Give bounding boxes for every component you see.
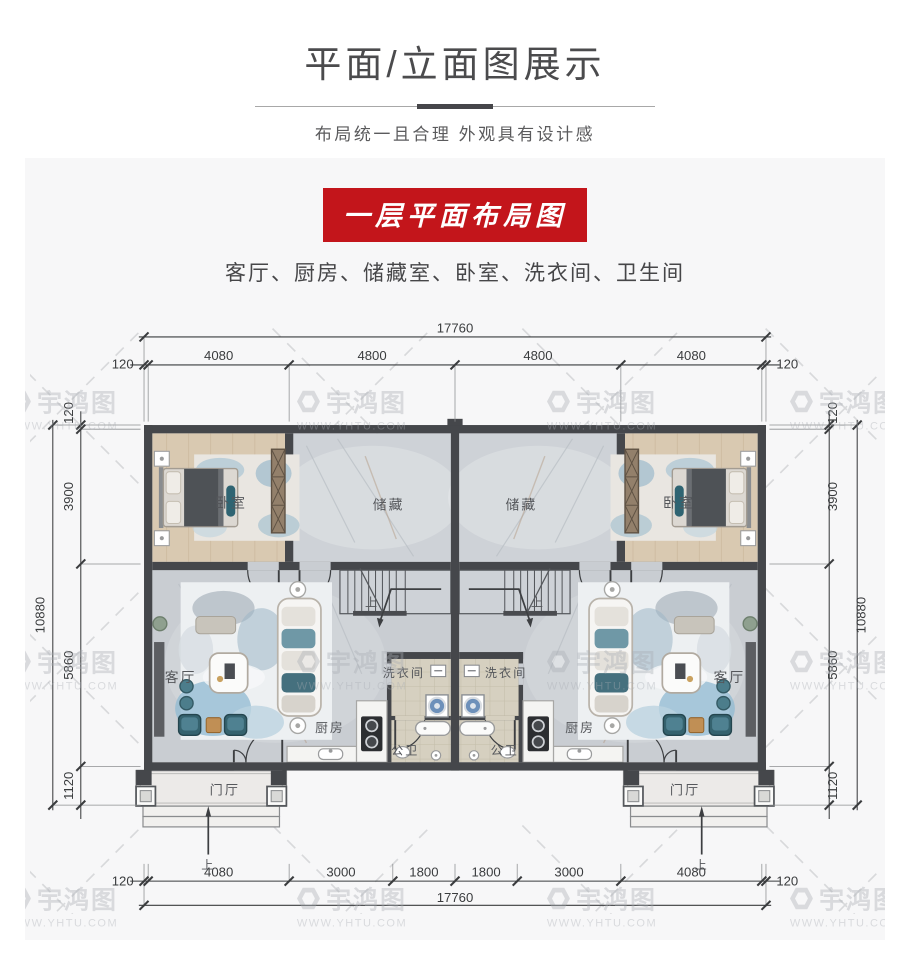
svg-text:1120: 1120 [61, 772, 76, 800]
bath-label-right: 公卫 [491, 743, 519, 757]
svg-text:120: 120 [825, 402, 840, 424]
svg-text:120: 120 [112, 874, 134, 889]
room-list: 客厅、厨房、储藏室、卧室、洗衣间、卫生间 [25, 257, 885, 287]
svg-text:3000: 3000 [554, 864, 583, 879]
living-label-left: 客厅 [165, 669, 197, 685]
svg-text:120: 120 [112, 356, 134, 371]
content-panel: 宇鸿图WWW.YHTU.COM 宇鸿图WWW.YHTU.COM 宇鸿图WWW.Y… [25, 158, 885, 940]
bedroom-label-left: 卧室 [215, 494, 247, 510]
dim-bottom-total: 17760 [437, 890, 473, 905]
kitchen-label-left: 厨房 [315, 720, 345, 735]
living-label-right: 客厅 [713, 669, 745, 685]
dim-left-total: 10880 [33, 597, 48, 634]
kitchen-label-right: 厨房 [565, 720, 595, 735]
storage-label-left: 储藏 [373, 497, 405, 513]
svg-text:4800: 4800 [357, 348, 386, 363]
svg-text:1120: 1120 [825, 772, 840, 800]
laundry-label-right: 洗衣间 [485, 665, 527, 680]
floor-plan-svg: 17760 120 4080 4800 4800 4080 120 120 40… [30, 302, 880, 914]
porch-up-label-left: 上 [201, 858, 215, 872]
svg-text:120: 120 [776, 356, 798, 371]
bath-label-left: 公卫 [391, 743, 419, 757]
page-header: 平面/立面图展示 布局统一且合理 外观具有设计感 [0, 0, 910, 145]
bedroom-label-right: 卧室 [663, 494, 695, 510]
dim-top-total: 17760 [437, 320, 473, 335]
dim-right-total: 10880 [853, 597, 868, 634]
svg-text:120: 120 [61, 402, 76, 424]
foyer-label-left: 门厅 [210, 783, 240, 798]
svg-text:3900: 3900 [61, 482, 76, 511]
laundry-label-left: 洗衣间 [383, 665, 425, 680]
stairs-up-label-left: 上 [365, 595, 379, 609]
svg-text:5860: 5860 [825, 651, 840, 680]
porch-up-label-right: 上 [695, 858, 709, 872]
svg-text:1800: 1800 [471, 864, 500, 879]
svg-text:1800: 1800 [409, 864, 438, 879]
svg-text:3000: 3000 [326, 864, 355, 879]
svg-text:4800: 4800 [523, 348, 552, 363]
svg-text:5860: 5860 [61, 651, 76, 680]
page-title: 平面/立面图展示 [0, 34, 910, 88]
divider-accent [417, 104, 493, 109]
svg-text:4080: 4080 [204, 348, 233, 363]
svg-text:3900: 3900 [825, 482, 840, 511]
svg-text:4080: 4080 [677, 348, 706, 363]
floor-banner: 一层平面布局图 [323, 188, 587, 242]
page-subtitle: 布局统一且合理 外观具有设计感 [0, 120, 910, 145]
storage-label-right: 储藏 [505, 497, 537, 513]
stairs-up-label-right: 上 [531, 595, 545, 609]
svg-text:120: 120 [776, 874, 798, 889]
title-divider [255, 104, 655, 110]
foyer-label-right: 门厅 [670, 783, 700, 798]
